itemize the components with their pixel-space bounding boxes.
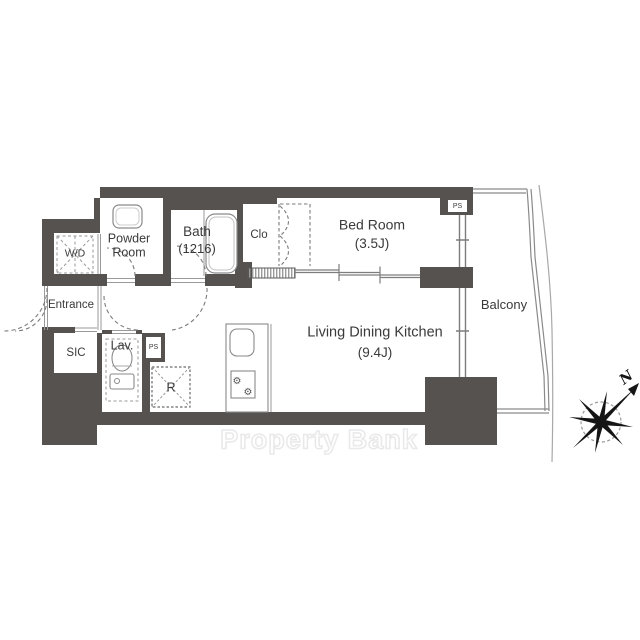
pipe-space-label: PS: [149, 344, 158, 351]
room-label-sic: SIC: [66, 347, 85, 359]
bedroom-window: [456, 215, 469, 267]
kitchen-counter: ⚙ ⚙: [226, 324, 271, 412]
ldk-door-arc: [172, 288, 207, 330]
stove-burner-icon: ⚙: [244, 387, 253, 398]
ldk-window: [456, 288, 469, 377]
floorplan-canvas: ⚙ ⚙ N PS PS: [0, 0, 640, 640]
pipe-space-box-lav: PS: [146, 337, 161, 358]
room-label-powder-2: Room: [112, 246, 145, 259]
kitchen-sink: [230, 329, 254, 356]
entrance-door-arc2: [15, 299, 47, 331]
room-label-ldk-size: (9.4J): [358, 346, 393, 360]
room-label-bath-size: (1216): [178, 242, 216, 256]
sliding-door: [295, 264, 420, 284]
room-label-fridge: R: [166, 381, 175, 394]
compass-north-label: N: [616, 367, 638, 389]
room-label-lavatory: Lav.: [111, 339, 134, 352]
stove-burner-icon: ⚙: [233, 376, 242, 387]
pipe-space-box-top: PS: [446, 198, 469, 214]
room-label-entrance: Entrance: [48, 299, 94, 311]
room-label-bedroom-size: (3.5J): [355, 237, 390, 251]
site-boundary-line: [539, 185, 553, 462]
entrance-door-arc: [4, 288, 47, 331]
room-label-wd: W/D: [65, 248, 85, 259]
lavatory-door-arc: [104, 296, 138, 330]
room-label-ldk: Living Dining Kitchen: [307, 325, 442, 340]
room-label-closet: Clo: [250, 229, 267, 241]
pipe-space-label: PS: [453, 203, 462, 210]
hatched-wall-strip: [248, 268, 295, 278]
powder-sink: [113, 205, 142, 228]
watermark-text: Property Bank: [220, 425, 418, 456]
closet-folding-doors: [279, 204, 310, 266]
compass-rose: N: [569, 367, 639, 453]
linework-layer: ⚙ ⚙ N: [0, 0, 640, 640]
room-label-balcony: Balcony: [481, 298, 527, 312]
room-label-powder-1: Powder: [108, 232, 150, 245]
room-label-bath: Bath: [183, 225, 211, 239]
door-swing-arcs: [4, 246, 207, 331]
room-label-bedroom: Bed Room: [339, 218, 405, 233]
